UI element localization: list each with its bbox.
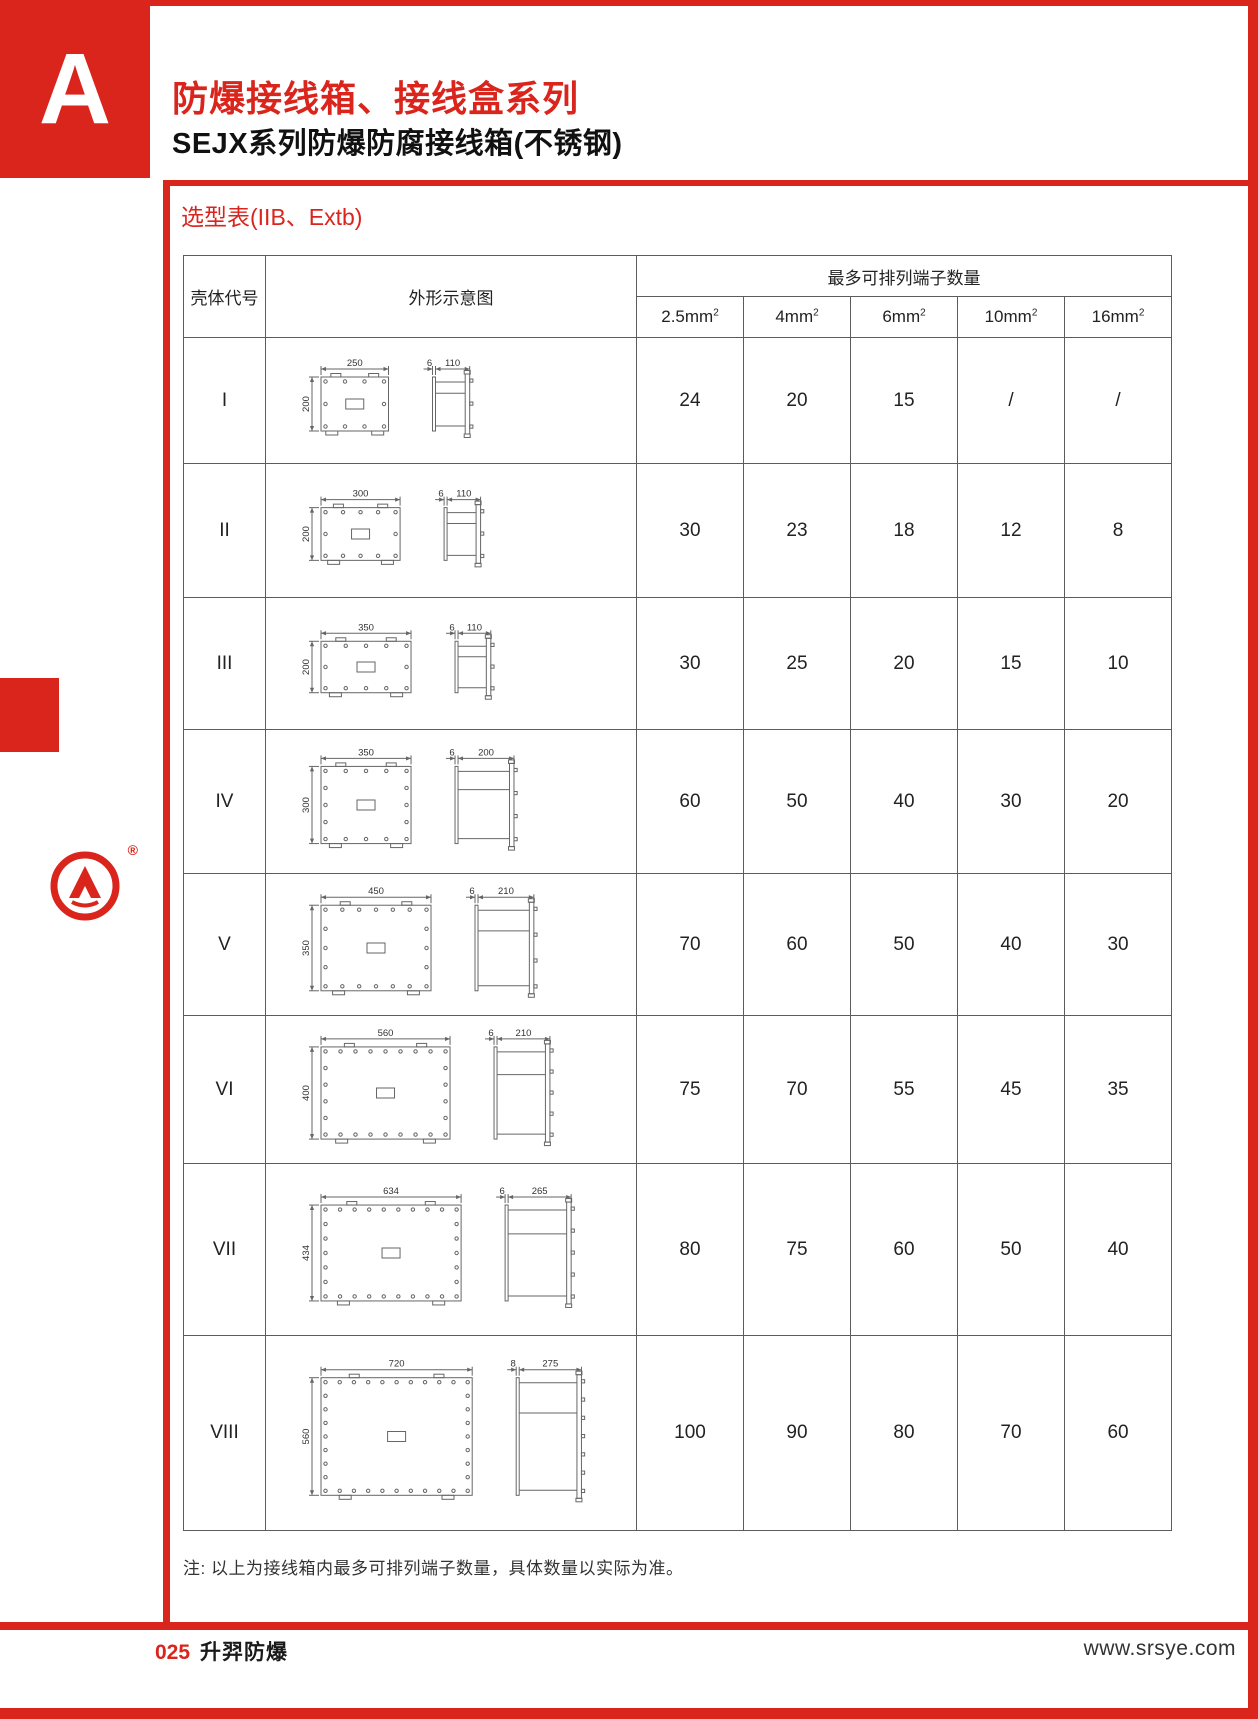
terminal-count-cell: 45 [958, 1016, 1065, 1164]
terminal-count-cell: 30 [958, 730, 1065, 874]
terminals-group-header: 最多可排列端子数量 [637, 256, 1172, 297]
terminal-count-cell: 60 [851, 1164, 958, 1336]
terminal-count-cell: 35 [1065, 1016, 1172, 1164]
svg-text:6: 6 [427, 358, 432, 369]
diagram-cell: 3002006110 [266, 464, 637, 598]
svg-text:450: 450 [368, 886, 384, 897]
diagram-cell: 7205608275 [266, 1336, 637, 1531]
outline-diagram: 7205608275 [275, 1337, 627, 1524]
svg-text:210: 210 [516, 1028, 532, 1039]
diagram-cell: 6344346265 [266, 1164, 637, 1336]
svg-text:200: 200 [301, 659, 312, 675]
terminal-count-cell: 60 [637, 730, 744, 874]
terminal-size-header: 2.5mm2 [637, 297, 744, 338]
frame-right-bar [1248, 0, 1258, 1719]
terminal-size-label: 16mm [1092, 307, 1139, 326]
svg-text:6: 6 [438, 489, 443, 500]
terminal-count-cell: 40 [1065, 1164, 1172, 1336]
shell-code-cell: III [184, 598, 266, 730]
logo-emblem-icon [46, 842, 138, 926]
terminal-size-sup: 2 [713, 307, 719, 318]
table-row: V45035062107060504030 [184, 874, 1172, 1016]
section-letter: A [39, 39, 111, 139]
svg-text:275: 275 [542, 1359, 558, 1370]
diagram-cell: 3503006200 [266, 730, 637, 874]
svg-text:200: 200 [301, 396, 312, 412]
terminal-count-cell: 25 [744, 598, 851, 730]
svg-text:560: 560 [378, 1028, 394, 1039]
svg-text:6: 6 [469, 886, 474, 897]
terminal-count-cell: 10 [1065, 598, 1172, 730]
catalog-page: A 防爆接线箱、接线盒系列 SEJX系列防爆防腐接线箱(不锈钢) 选型表(IIB… [0, 0, 1258, 1719]
svg-text:110: 110 [467, 622, 482, 633]
header-divider-line [163, 180, 1258, 186]
table-row: II3002006110302318128 [184, 464, 1172, 598]
terminal-count-cell: / [958, 338, 1065, 464]
svg-text:110: 110 [456, 489, 471, 500]
diagram-cell: 3502006110 [266, 598, 637, 730]
terminal-size-sup: 2 [813, 307, 819, 318]
registered-mark: ® [128, 842, 138, 858]
shell-code-cell: II [184, 464, 266, 598]
terminal-count-cell: 55 [851, 1016, 958, 1164]
page-footer: 025升羿防爆 [155, 1636, 288, 1666]
outline-diagram: 4503506210 [275, 875, 627, 1009]
shell-code-header: 壳体代号 [184, 256, 266, 338]
terminal-count-cell: 20 [851, 598, 958, 730]
terminal-count-cell: 70 [637, 874, 744, 1016]
terminal-count-cell: 80 [851, 1336, 958, 1531]
outline-diagram: 2502006110 [275, 339, 627, 457]
terminal-count-cell: 50 [851, 874, 958, 1016]
svg-text:400: 400 [301, 1085, 312, 1101]
diagram-cell: 4503506210 [266, 874, 637, 1016]
shell-code-cell: VIII [184, 1336, 266, 1531]
website-url: www.srsye.com [1084, 1637, 1236, 1661]
svg-text:350: 350 [358, 622, 374, 633]
svg-text:300: 300 [301, 797, 312, 813]
table-row: VII63443462658075605040 [184, 1164, 1172, 1336]
svg-text:6: 6 [488, 1028, 493, 1039]
footnote: 注: 以上为接线箱内最多可排列端子数量，具体数量以实际为准。 [183, 1554, 683, 1579]
outline-diagram: 3503006200 [275, 731, 627, 867]
selection-table: 壳体代号 外形示意图 最多可排列端子数量 2.5mm24mm26mm210mm2… [183, 255, 1172, 1531]
table-row: VIII720560827510090807060 [184, 1336, 1172, 1531]
shell-code-cell: I [184, 338, 266, 464]
svg-text:300: 300 [353, 489, 369, 500]
company-name: 升羿防爆 [200, 1641, 288, 1664]
diagram-header: 外形示意图 [266, 256, 637, 338]
svg-text:350: 350 [301, 940, 312, 956]
terminal-count-cell: 60 [1065, 1336, 1172, 1531]
table-body: I2502006110242015//II3002006110302318128… [184, 338, 1172, 1531]
section-tab: A [0, 0, 150, 178]
page-subtitle: SEJX系列防爆防腐接线箱(不锈钢) [172, 120, 622, 162]
terminal-count-cell: 8 [1065, 464, 1172, 598]
svg-text:110: 110 [445, 358, 460, 369]
page-number: 025 [155, 1641, 190, 1664]
content-divider-vertical [163, 180, 170, 1624]
terminal-size-label: 2.5mm [661, 307, 713, 326]
terminal-size-sup: 2 [1032, 307, 1038, 318]
terminal-count-cell: 15 [851, 338, 958, 464]
svg-text:200: 200 [301, 526, 312, 542]
footer-divider-line [0, 1622, 1258, 1630]
frame-bottom-bar [0, 1708, 1258, 1719]
terminal-count-cell: 70 [958, 1336, 1065, 1531]
terminal-count-cell: 23 [744, 464, 851, 598]
selection-table-title: 选型表(IIB、Extb) [181, 198, 362, 232]
outline-diagram: 5604006210 [275, 1017, 627, 1157]
terminal-count-cell: 90 [744, 1336, 851, 1531]
terminal-count-cell: 30 [637, 464, 744, 598]
svg-text:6: 6 [499, 1186, 504, 1197]
svg-text:434: 434 [301, 1245, 312, 1261]
table-row: IV35030062006050403020 [184, 730, 1172, 874]
outline-diagram: 6344346265 [275, 1165, 627, 1329]
frame-top-bar [0, 0, 1258, 6]
diagram-cell: 5604006210 [266, 1016, 637, 1164]
svg-text:200: 200 [478, 747, 494, 758]
shell-code-cell: VII [184, 1164, 266, 1336]
svg-text:350: 350 [358, 747, 374, 758]
shell-code-cell: V [184, 874, 266, 1016]
terminal-size-header: 10mm2 [958, 297, 1065, 338]
terminal-count-cell: 12 [958, 464, 1065, 598]
terminal-count-cell: 20 [1065, 730, 1172, 874]
terminal-count-cell: 60 [744, 874, 851, 1016]
terminal-size-header: 6mm2 [851, 297, 958, 338]
svg-text:250: 250 [347, 358, 363, 369]
terminal-count-cell: 20 [744, 338, 851, 464]
terminal-size-sup: 2 [920, 307, 926, 318]
shell-code-cell: IV [184, 730, 266, 874]
shell-code-cell: VI [184, 1016, 266, 1164]
terminal-count-cell: 40 [851, 730, 958, 874]
outline-diagram: 3002006110 [275, 465, 627, 591]
terminal-count-cell: 70 [744, 1016, 851, 1164]
terminal-count-cell: 100 [637, 1336, 744, 1531]
terminal-count-cell: / [1065, 338, 1172, 464]
terminal-count-cell: 75 [744, 1164, 851, 1336]
terminal-count-cell: 50 [744, 730, 851, 874]
table-row: I2502006110242015// [184, 338, 1172, 464]
outline-diagram: 3502006110 [275, 599, 627, 723]
terminal-size-header: 4mm2 [744, 297, 851, 338]
terminal-count-cell: 30 [1065, 874, 1172, 1016]
terminal-count-cell: 18 [851, 464, 958, 598]
terminal-count-cell: 80 [637, 1164, 744, 1336]
svg-text:6: 6 [449, 622, 454, 633]
table-row: VI56040062107570554535 [184, 1016, 1172, 1164]
left-margin-red-block [0, 678, 59, 752]
terminal-size-header: 16mm2 [1065, 297, 1172, 338]
diagram-cell: 2502006110 [266, 338, 637, 464]
svg-text:720: 720 [389, 1359, 405, 1370]
terminal-count-cell: 24 [637, 338, 744, 464]
terminal-count-cell: 75 [637, 1016, 744, 1164]
terminal-count-cell: 40 [958, 874, 1065, 1016]
terminal-size-label: 10mm [985, 307, 1032, 326]
terminal-size-sup: 2 [1139, 307, 1145, 318]
terminal-count-cell: 30 [637, 598, 744, 730]
svg-text:634: 634 [383, 1186, 399, 1197]
page-title: 防爆接线箱、接线盒系列 [172, 70, 579, 122]
group-header-row: 壳体代号 外形示意图 最多可排列端子数量 [184, 256, 1172, 297]
svg-text:210: 210 [498, 886, 514, 897]
table-row: III35020061103025201510 [184, 598, 1172, 730]
terminal-count-cell: 15 [958, 598, 1065, 730]
svg-text:560: 560 [301, 1429, 312, 1445]
terminal-size-label: 6mm [882, 307, 920, 326]
svg-text:6: 6 [449, 747, 454, 758]
svg-text:265: 265 [532, 1186, 548, 1197]
terminal-size-label: 4mm [775, 307, 813, 326]
svg-text:8: 8 [511, 1359, 516, 1370]
company-logo: ® [46, 842, 138, 926]
terminal-count-cell: 50 [958, 1164, 1065, 1336]
